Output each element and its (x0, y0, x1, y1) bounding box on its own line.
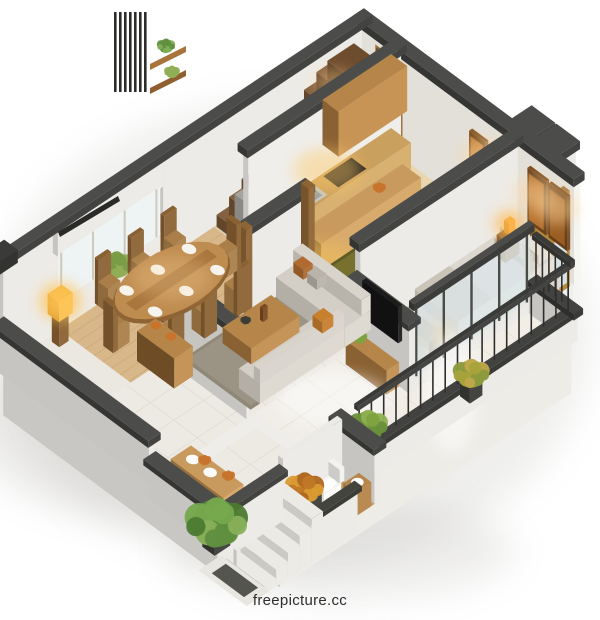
scene-root (0, 8, 590, 606)
dining-glow (131, 255, 211, 299)
table-statue (260, 304, 268, 323)
entry-figure (234, 546, 241, 567)
floorplan-svg (0, 0, 600, 620)
shelf-plant-a (157, 39, 175, 54)
watermark-text: freepicture.cc (0, 592, 600, 609)
floorplan-page: freepicture.cc (0, 0, 600, 620)
slat-screen (114, 12, 147, 92)
bed-wall-light-b (534, 192, 578, 224)
floor-lamp-glow (40, 283, 80, 319)
